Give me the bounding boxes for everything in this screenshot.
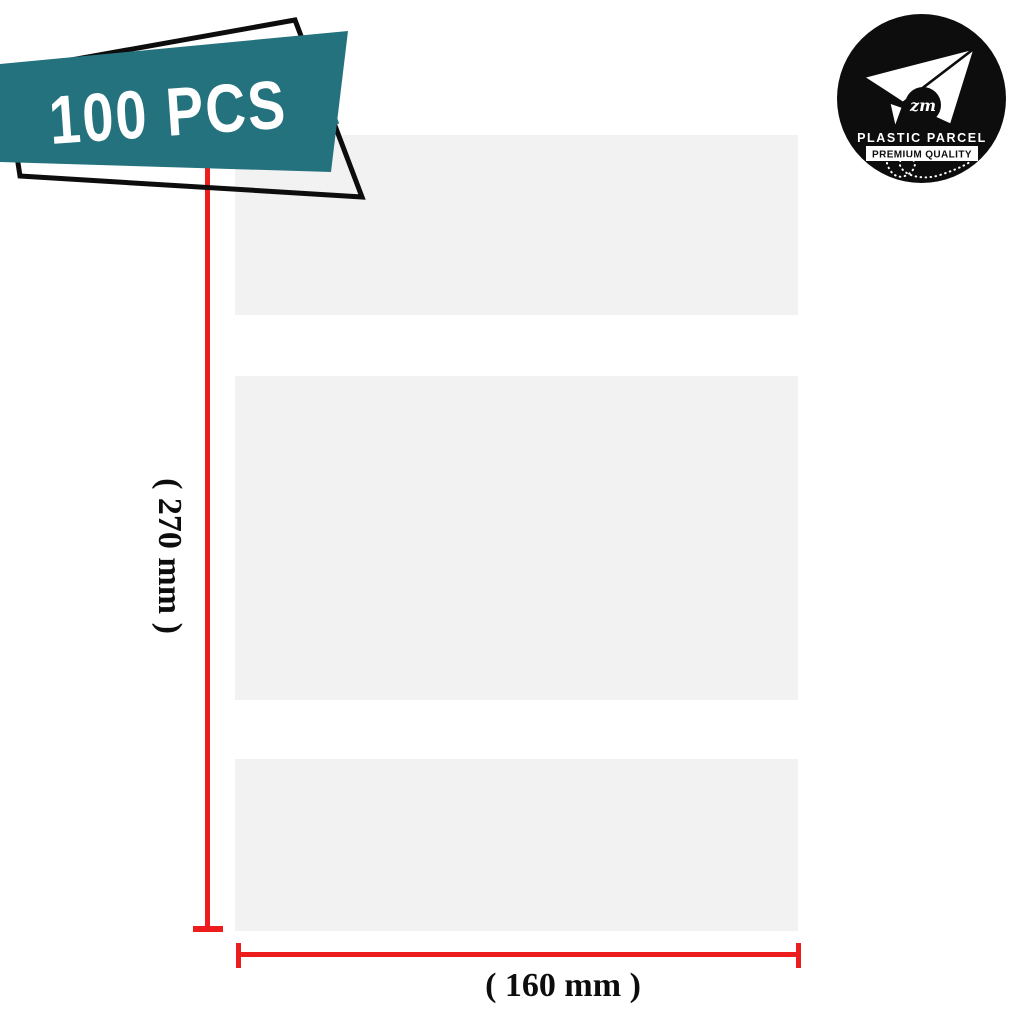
brand-logo: zm PLASTIC PARCEL PREMIUM QUALITY [836, 12, 1008, 188]
width-dimension-label: ( 160 mm ) [485, 967, 641, 1005]
height-dimension-line [205, 162, 210, 930]
width-dimension-line [238, 952, 799, 957]
brand-name: PLASTIC PARCEL [857, 131, 987, 145]
monogram-text: zm [909, 96, 936, 115]
bag-highlight-stripe-bottom [235, 700, 798, 759]
height-dimension-bottom-tick [193, 926, 223, 932]
height-dimension-label: ( 270 mm ) [150, 478, 188, 634]
product-annotation-image: ( 270 mm ) ( 160 mm ) 100 PCS zm PLASTIC… [0, 0, 1024, 1024]
width-dimension-right-tick [796, 943, 801, 968]
bag-highlight-stripe-top [235, 315, 798, 376]
width-dimension-left-tick [236, 943, 241, 968]
plastic-bag-photo [235, 135, 798, 931]
quantity-badge-label: 100 PCS [46, 64, 289, 160]
